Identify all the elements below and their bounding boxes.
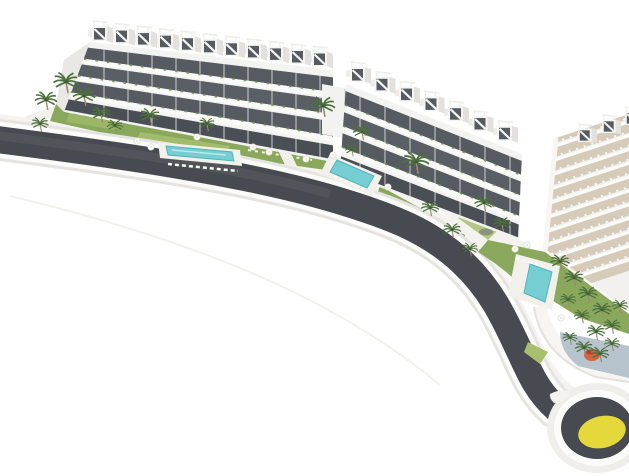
parasol (330, 152, 336, 158)
parasol (558, 315, 564, 321)
parasol (524, 242, 530, 248)
parasol (266, 149, 272, 155)
parasol (385, 184, 391, 190)
parasol (512, 246, 518, 252)
parasol (194, 134, 200, 140)
parasol (134, 138, 140, 144)
aerial-render (0, 0, 629, 476)
render-canvas (0, 0, 629, 476)
parasol (303, 156, 309, 162)
parasol (285, 153, 291, 159)
parasol (250, 144, 256, 150)
palm-tree (587, 325, 605, 340)
roundabout (547, 383, 629, 473)
parasol (148, 144, 154, 150)
